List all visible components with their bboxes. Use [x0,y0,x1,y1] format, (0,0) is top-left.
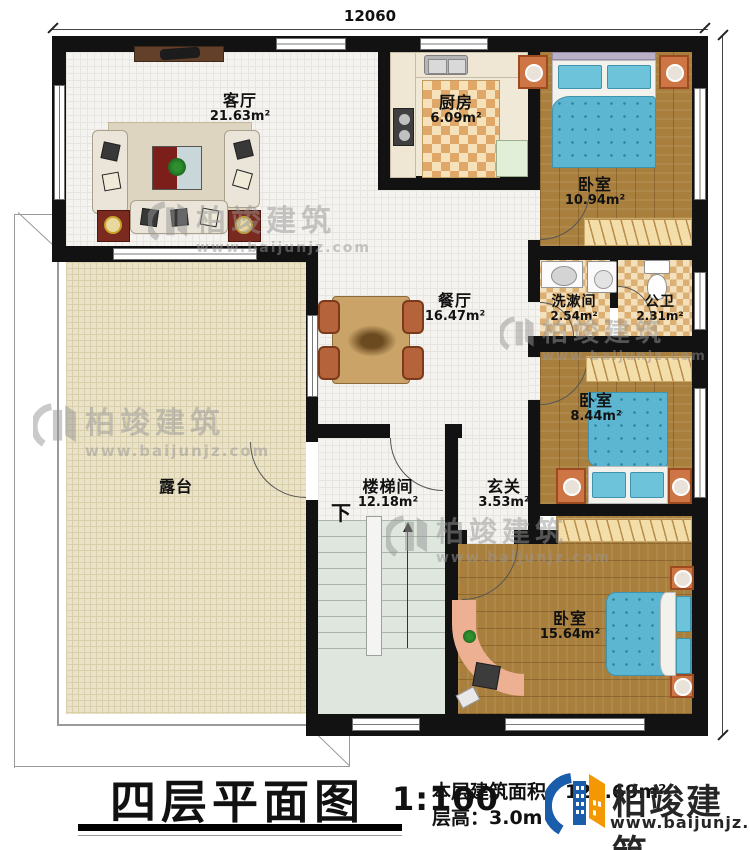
sofa-cushion [232,169,253,190]
washroom-basin [551,266,577,286]
dimension-tick [717,729,728,740]
room-name: 卧室 [535,176,655,194]
dining-chair [318,346,340,380]
room-label-washroom: 洗漱间 2.54m² [524,294,624,324]
wardrobe [584,218,692,246]
washer-drum [594,270,613,289]
wall-kitchen-left [378,52,390,190]
brand-url: www.baijunjz.com [610,813,750,832]
computer-monitor [472,662,501,690]
stair-direction-arrow [403,522,413,532]
room-label-stairwell: 楼梯间 12.18m² [328,478,448,511]
dining-chair [402,346,424,380]
room-name: 露台 [116,478,236,496]
window-bedroom-top-right [694,88,706,200]
window-bedroom-mid-right [694,388,706,498]
wall-kitchen-south [378,176,528,190]
room-label-bedroom-mid: 卧室 8.44m² [536,392,656,425]
room-label-living: 客厅 21.63m² [180,92,300,125]
room-name: 餐厅 [395,292,515,310]
wall-bedroom-bottom-north-b [514,530,558,544]
room-label-terrace: 露台 [116,478,236,496]
roof-outline-left [14,214,15,768]
room-label-toilet: 公卫 2.31m² [610,294,710,324]
window-bedroom-bottom [505,718,645,731]
floor-plan-canvas: 下 客厅 21.63m² 厨房 6.09m² 卧室 10.94m² 餐厅 16.… [0,0,750,850]
burner [399,130,410,141]
room-name: 楼梯间 [328,478,448,496]
toilet-tank [644,260,670,274]
wardrobe [558,518,692,542]
pillow [676,596,691,632]
dimension-top-label: 12060 [310,7,430,25]
terrace-parapet-left [57,254,59,726]
sofa-cushion [233,139,254,160]
room-area: 2.54m² [524,310,624,324]
sofa-cushion [100,141,120,161]
plan-scale: 1:100 [392,780,499,818]
wall-stairhall-north-a [306,424,390,438]
table-centerpiece [347,325,397,357]
room-label-foyer: 玄关 3.53m² [444,478,564,511]
sofa-left [92,130,128,214]
dimension-line-right [722,36,723,736]
room-area: 15.64m² [510,628,630,643]
pillow [558,65,602,89]
brand-logo-icon [545,768,609,846]
room-area: 16.47m² [395,310,515,325]
wall-stairhall-north-b [445,424,462,438]
plant [463,630,476,643]
wall-terrace-right-lower [306,500,318,714]
nightstand [670,566,694,590]
window-dining-terrace [307,315,318,397]
plan-title: 四层平面图 [110,766,365,832]
window-living-south [113,248,257,260]
table-lamp [235,216,253,234]
wardrobe [586,356,692,382]
room-label-dining: 餐厅 16.47m² [395,292,515,325]
nightstand [668,468,692,504]
room-area: 21.63m² [180,110,300,125]
bed-blanket [552,96,656,168]
stair-stringer [366,516,382,656]
sofa-cushion [170,208,189,227]
room-name: 玄关 [444,478,564,496]
bed [660,592,676,676]
dining-chair [318,300,340,334]
plant [168,158,186,176]
stair-walk-line [407,530,408,648]
sofa-bottom [130,200,228,234]
pillow [592,472,626,498]
room-name: 厨房 [396,94,516,112]
bed-headboard [552,52,656,60]
room-area: 3.53m² [444,496,564,511]
room-name: 公卫 [610,294,710,310]
brand-name: 柏竣建筑 [612,774,750,850]
nightstand [518,55,548,89]
window-living-top [276,38,346,50]
room-name: 洗漱间 [524,294,624,310]
washing-machine [587,261,617,293]
sofa-cushion [200,208,220,228]
dimension-tick [717,29,728,40]
title-underline-thick [78,824,402,831]
room-area: 6.09m² [396,112,516,127]
washroom-sink-counter [541,261,583,288]
sofa-right [224,130,260,208]
dimension-line-top [52,29,708,30]
room-area: 2.31m² [610,310,710,324]
terrace-parapet-bottom [57,724,307,726]
room-name: 客厅 [180,92,300,110]
pillow [607,65,651,89]
dimension-tick [699,22,710,33]
room-label-bedroom-bottom: 卧室 15.64m² [510,610,630,643]
sofa-cushion [102,172,122,192]
room-area: 10.94m² [535,194,655,209]
window-stair-bottom [352,718,420,731]
pillow [676,638,691,674]
room-label-bedroom-top: 卧室 10.94m² [535,176,655,209]
window-living-left [54,85,65,200]
nightstand [659,55,689,89]
wall-bath-south [528,336,692,352]
sink-basin [448,59,466,74]
room-name: 卧室 [536,392,656,410]
kitchen-sink [424,55,468,75]
pillow [630,472,664,498]
room-area: 12.18m² [328,496,448,511]
sofa-cushion [140,208,159,227]
title-underline-thin [78,835,402,836]
room-area: 8.44m² [536,410,656,425]
room-label-kitchen: 厨房 6.09m² [396,94,516,127]
room-name: 卧室 [510,610,630,628]
table-lamp [104,216,122,234]
fridge [496,140,528,177]
window-kitchen-top [420,38,488,50]
dimension-tick [47,22,58,33]
nightstand [670,674,694,698]
sink-basin [428,59,447,74]
